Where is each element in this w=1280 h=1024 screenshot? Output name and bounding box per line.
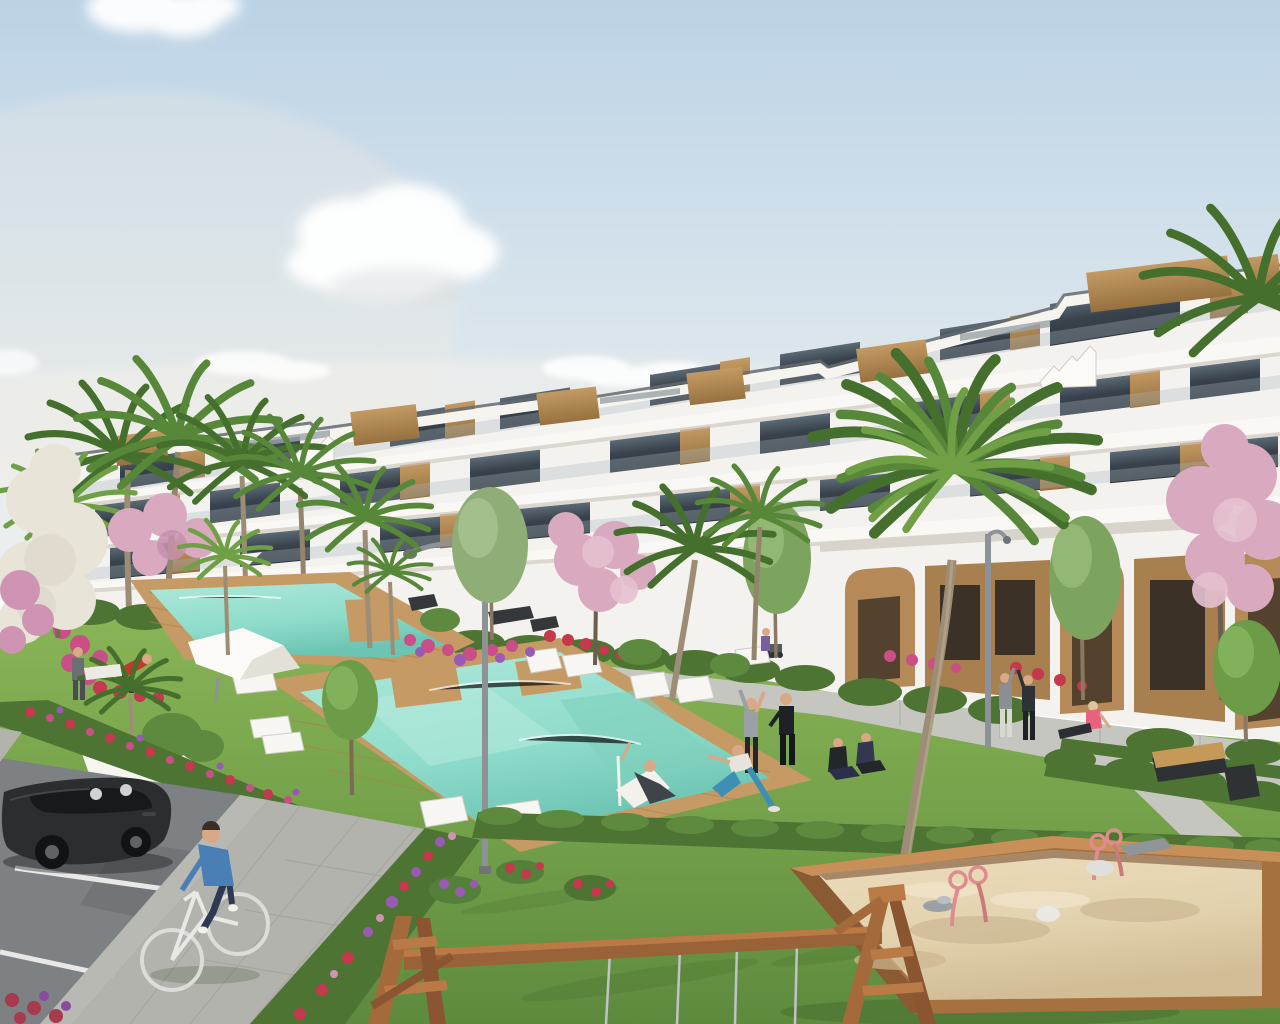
architectural-render [0,0,1280,1024]
render-viewport [0,0,1280,1024]
parked-car [2,778,173,874]
